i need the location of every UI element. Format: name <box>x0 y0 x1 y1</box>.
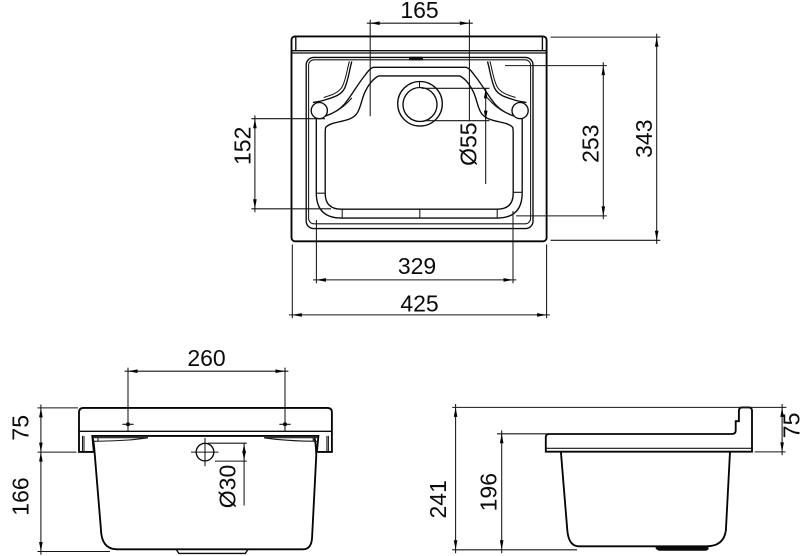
svg-text:253: 253 <box>578 125 604 163</box>
svg-text:329: 329 <box>398 253 436 279</box>
svg-text:Ø55: Ø55 <box>456 122 482 165</box>
svg-text:165: 165 <box>400 0 438 23</box>
svg-text:343: 343 <box>631 120 657 158</box>
svg-text:260: 260 <box>187 345 225 371</box>
svg-text:166: 166 <box>8 477 34 515</box>
svg-text:Ø30: Ø30 <box>215 465 241 508</box>
svg-text:75: 75 <box>8 415 34 441</box>
svg-text:425: 425 <box>400 291 438 317</box>
svg-text:75: 75 <box>779 413 800 439</box>
svg-text:152: 152 <box>229 127 255 165</box>
svg-text:196: 196 <box>476 473 502 511</box>
svg-text:241: 241 <box>425 480 451 518</box>
